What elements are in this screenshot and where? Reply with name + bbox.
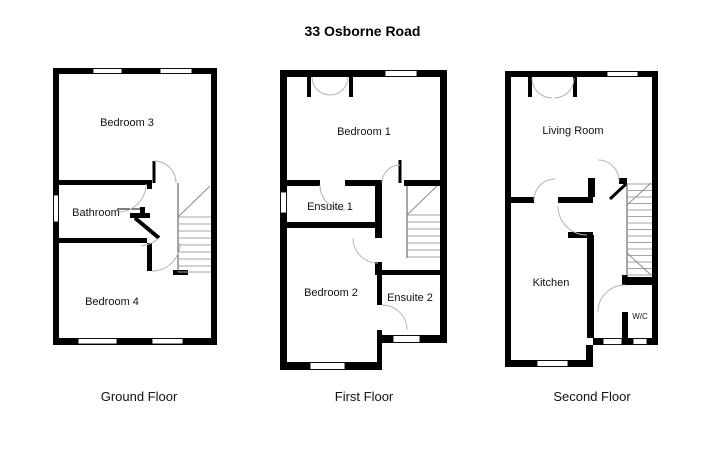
room-label-kitchen: Kitchen [533, 277, 570, 289]
door-leaf [135, 218, 159, 238]
wall [568, 232, 593, 238]
door-swing-arc [382, 165, 400, 183]
window [393, 336, 420, 343]
wall [147, 243, 152, 271]
wall [586, 345, 593, 360]
wall [59, 238, 147, 243]
door-swing-arc [598, 160, 619, 181]
staircase [627, 183, 652, 277]
window [281, 192, 287, 213]
floorplan-canvas: 33 Osborne Road [0, 0, 725, 460]
door-swing-arc [558, 206, 587, 235]
wall [652, 71, 658, 345]
wall [280, 70, 447, 77]
room-label-ensuite2: Ensuite 2 [387, 292, 433, 304]
window [603, 339, 622, 345]
wall [622, 312, 628, 338]
wall [375, 180, 382, 238]
room-label-bedroom1: Bedroom 1 [337, 126, 391, 138]
window [310, 363, 345, 370]
wall [130, 213, 150, 218]
door-leaf [610, 184, 626, 199]
door-swing-arc [154, 161, 176, 183]
wall [588, 178, 595, 197]
window [54, 195, 59, 222]
window [537, 361, 568, 367]
second-floor-label: Second Floor [553, 389, 630, 404]
wall [505, 71, 511, 367]
wall [147, 180, 152, 189]
wall [619, 178, 627, 184]
staircase [178, 183, 211, 272]
ground-floor-plan: Bedroom 3 Bathroom Bedroom 4 [53, 68, 217, 345]
window [633, 339, 647, 345]
window [160, 69, 192, 74]
wall [377, 330, 382, 362]
wall [627, 277, 652, 285]
second-floor-plan: Living Room Kitchen W/C [505, 71, 658, 367]
room-label-living-room: Living Room [542, 125, 603, 137]
door-swing-arc [152, 243, 180, 271]
wall [287, 180, 320, 186]
room-label-ensuite1: Ensuite 1 [307, 201, 353, 213]
wall [287, 222, 377, 228]
room-label-bedroom3: Bedroom 3 [100, 117, 154, 129]
window [78, 339, 117, 345]
room-label-bedroom4: Bedroom 4 [85, 296, 139, 308]
first-floor-plan: Bedroom 1 Ensuite 1 Bedroom 2 Ensuite 2 [280, 70, 447, 370]
wall [404, 180, 440, 186]
room-label-wc: W/C [632, 312, 648, 321]
window [607, 72, 638, 77]
room-label-bedroom2: Bedroom 2 [304, 287, 358, 299]
wall [211, 68, 217, 345]
wall [377, 275, 382, 305]
wall [593, 338, 603, 345]
window [152, 339, 183, 345]
wall [59, 180, 147, 185]
door-swing-arc [382, 305, 407, 330]
door-swing-arc [534, 179, 555, 200]
door-swing-arc [598, 285, 625, 312]
staircase [407, 186, 440, 258]
door-swing-arc [353, 238, 378, 263]
wall [511, 197, 534, 203]
ground-floor-label: Ground Floor [101, 389, 178, 404]
first-floor-label: First Floor [335, 389, 394, 404]
wall [440, 70, 447, 343]
wall [377, 270, 447, 275]
window [93, 69, 122, 74]
wall [280, 70, 287, 370]
wall [558, 197, 593, 203]
window [385, 71, 417, 77]
wall [140, 207, 145, 213]
wall [587, 235, 594, 338]
room-label-bathroom: Bathroom [72, 207, 120, 219]
